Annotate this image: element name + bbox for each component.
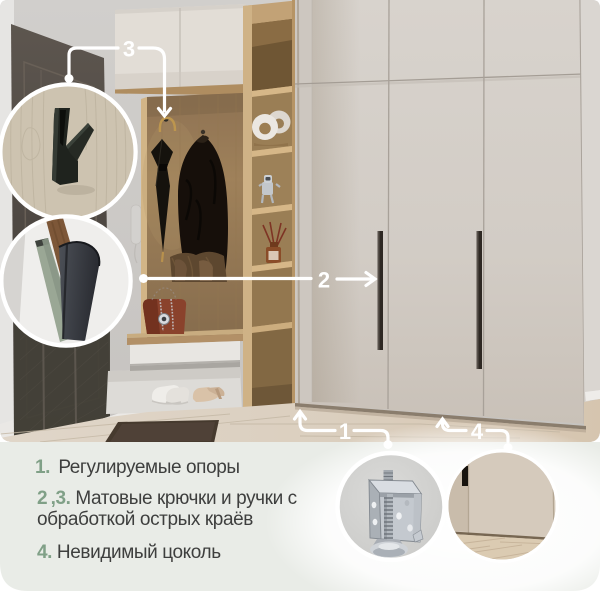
svg-text:1: 1 bbox=[339, 419, 351, 444]
svg-text:2: 2 bbox=[318, 268, 330, 293]
svg-text:4: 4 bbox=[471, 419, 484, 444]
svg-text:3: 3 bbox=[123, 37, 135, 62]
